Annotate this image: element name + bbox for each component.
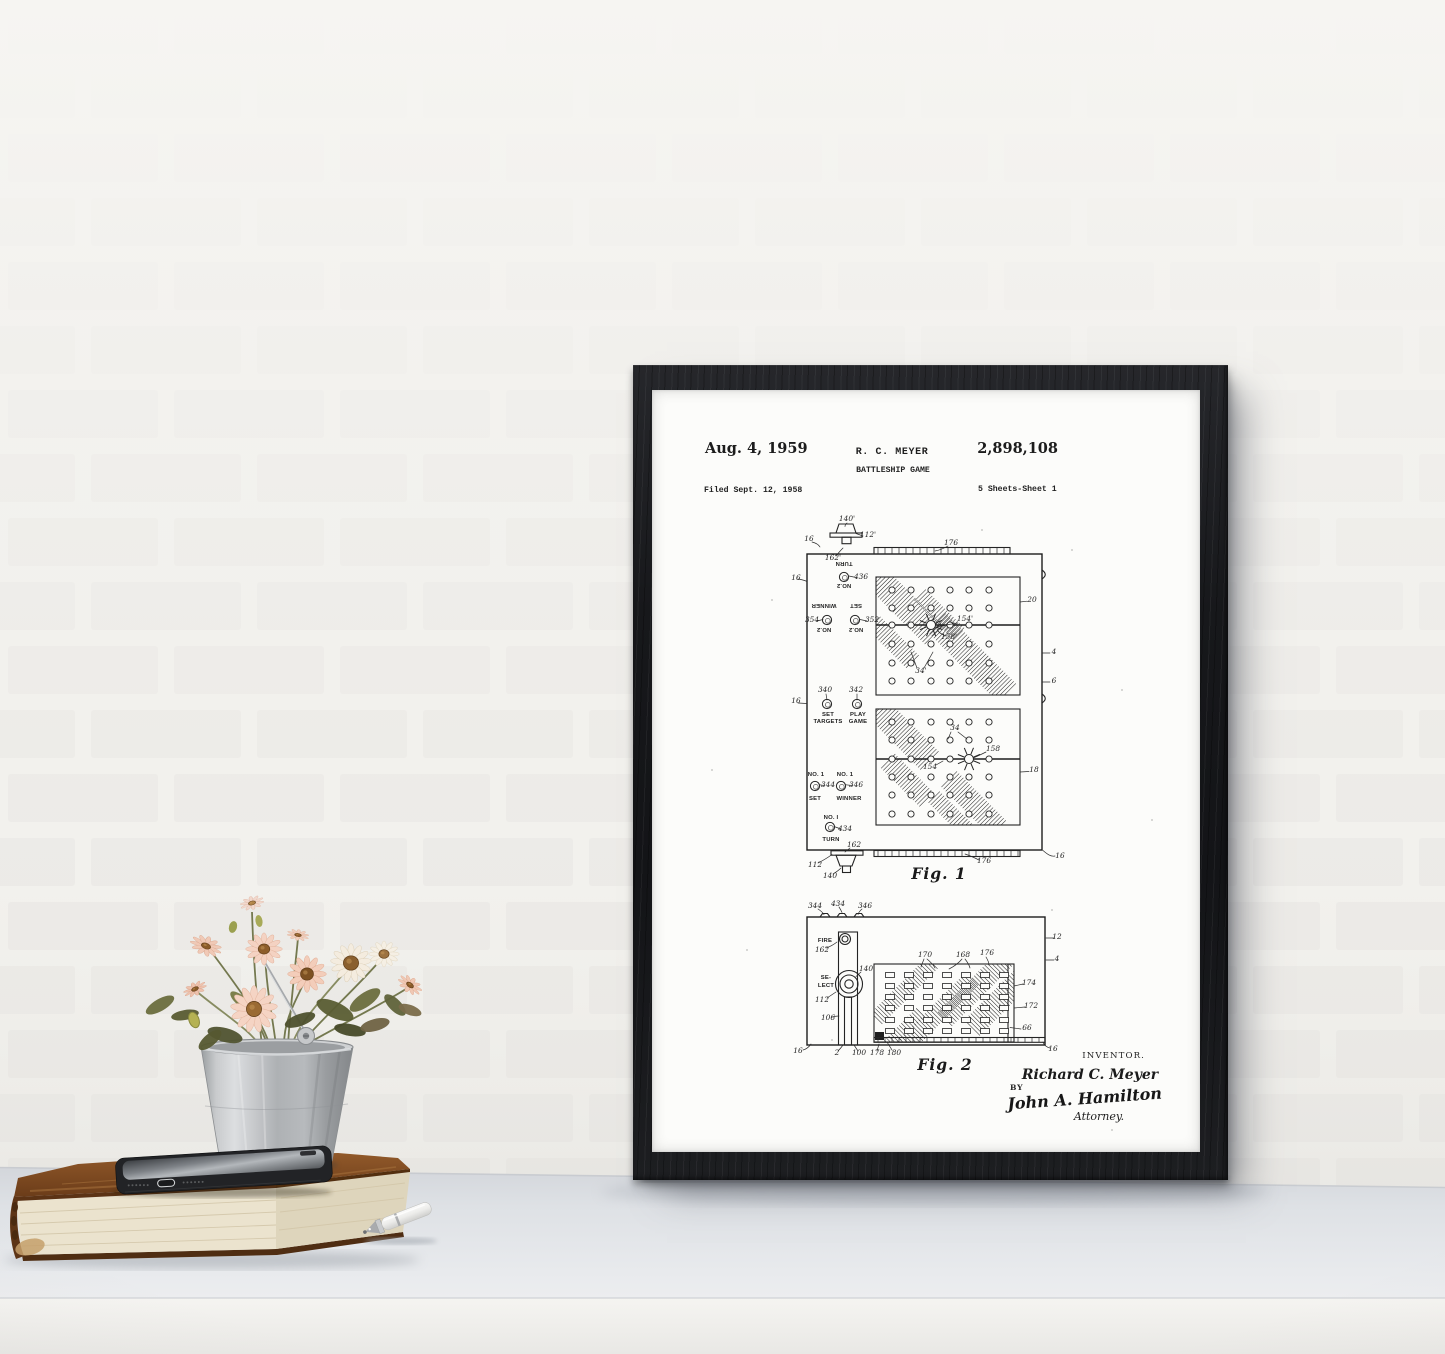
svg-text:NO.2: NO.2 [836,582,851,588]
svg-text:342: 342 [849,685,863,694]
svg-text:16: 16 [791,573,801,582]
svg-text:352: 352 [865,615,879,624]
signature-block: INVENTOR. Richard C. Meyer BY John A. Ha… [1004,1051,1163,1123]
svg-text:12: 12 [1052,932,1062,941]
phone-charging-port [157,1179,174,1187]
fig1-caption: Fig. 1 [910,864,966,883]
fig1-leader-lines [798,523,1055,874]
svg-text:176: 176 [944,538,958,547]
svg-text:154: 154 [923,762,937,771]
svg-text:WINNER: WINNER [811,602,837,608]
inventor-label: INVENTOR. [1082,1051,1145,1061]
pen-shadow [365,1238,437,1245]
patent-filed-date: Filed Sept. 12, 1958 [704,485,802,495]
attorney-label: Attorney. [1073,1110,1124,1123]
svg-text:SET: SET [809,796,821,802]
svg-text:6: 6 [1052,676,1057,685]
fig1-drawing: Fig. 1 [798,523,1055,883]
tabletop-still-life [0,880,470,1310]
fig2-caption: Fig. 2 [916,1055,972,1074]
svg-text:2: 2 [834,1048,840,1057]
svg-text:354: 354 [805,615,819,624]
svg-text:140': 140' [839,514,855,523]
svg-text:34': 34' [915,666,926,675]
svg-text:176: 176 [980,948,994,957]
svg-text:SE-: SE- [821,975,831,981]
svg-text:WINNER: WINNER [836,796,862,802]
svg-text:178: 178 [870,1048,884,1057]
svg-text:172: 172 [1024,1001,1038,1010]
svg-text:TURN: TURN [822,837,839,843]
inventor-signature: Richard C. Meyer [1021,1067,1160,1083]
svg-text:106: 106 [821,1013,835,1022]
svg-text:176: 176 [977,856,991,865]
patent-sheet-info: 5 Sheets-Sheet 1 [978,484,1057,494]
patent-inventor-name: R. C. MEYER [856,447,929,458]
svg-text:20: 20 [1026,595,1037,604]
svg-text:NO.2: NO.2 [848,626,863,632]
svg-text:434: 434 [837,824,852,833]
svg-text:NO.2: NO.2 [816,626,831,632]
svg-text:170: 170 [918,950,932,959]
patent-date: Aug. 4, 1959 [704,440,808,457]
svg-text:SET: SET [822,712,834,718]
svg-text:340: 340 [818,685,832,694]
svg-text:346: 346 [858,901,872,910]
svg-text:346: 346 [849,780,863,789]
svg-text:NO. 1: NO. 1 [808,772,825,778]
svg-text:174: 174 [1022,978,1036,987]
svg-text:16: 16 [793,1046,803,1055]
svg-text:168: 168 [956,950,970,959]
svg-text:66: 66 [1022,1023,1032,1032]
patent-title: BATTLESHIP GAME [856,466,930,475]
svg-text:SET: SET [850,602,862,608]
svg-text:112': 112' [860,530,876,539]
svg-text:NO. I: NO. I [824,815,839,821]
svg-text:34: 34 [950,723,960,732]
daisy-flowers [181,893,425,1032]
svg-text:140: 140 [859,964,873,973]
svg-text:154': 154' [957,614,973,623]
svg-text:112: 112 [815,995,829,1004]
svg-text:436: 436 [853,572,868,581]
svg-text:112: 112 [808,860,822,869]
svg-text:140: 140 [823,871,837,880]
svg-text:TURN: TURN [835,560,852,566]
svg-text:4: 4 [1051,647,1057,656]
picture-frame: Aug. 4, 1959 R. C. MEYER 2,898,108 BATTL… [633,365,1228,1180]
svg-text:18: 18 [1029,765,1039,774]
svg-text:16: 16 [791,696,801,705]
svg-text:PLAY: PLAY [850,712,866,718]
svg-text:4: 4 [1054,954,1060,963]
svg-text:100: 100 [852,1048,866,1057]
svg-text:GAME: GAME [849,719,867,725]
smartphone [112,1145,333,1197]
frame-shadow-on-table [600,1179,1270,1205]
svg-text:162: 162 [815,945,829,954]
svg-text:180: 180 [887,1048,901,1057]
patent-number: 2,898,108 [977,440,1058,457]
patent-paper: Aug. 4, 1959 R. C. MEYER 2,898,108 BATTL… [652,390,1200,1152]
svg-text:434: 434 [830,899,845,908]
fig2-drawing: Fig. 2 [803,907,1054,1074]
by-label: BY [1010,1083,1023,1092]
svg-text:TARGETS: TARGETS [813,719,842,725]
svg-text:NO. 1: NO. 1 [837,772,854,778]
svg-text:16: 16 [1055,851,1065,860]
svg-text:344: 344 [808,901,822,910]
svg-text:FIRE: FIRE [818,938,832,944]
svg-text:16: 16 [1048,1044,1058,1053]
svg-text:LECT: LECT [818,983,834,989]
svg-text:344: 344 [821,780,835,789]
svg-text:158: 158 [986,744,1000,753]
svg-text:162: 162 [847,840,861,849]
svg-text:16: 16 [804,534,814,543]
framed-patent-photo: Aug. 4, 1959 R. C. MEYER 2,898,108 BATTL… [0,0,1445,1354]
patent-sheet: Aug. 4, 1959 R. C. MEYER 2,898,108 BATTL… [652,390,1200,1152]
svg-text:158': 158' [941,632,957,641]
